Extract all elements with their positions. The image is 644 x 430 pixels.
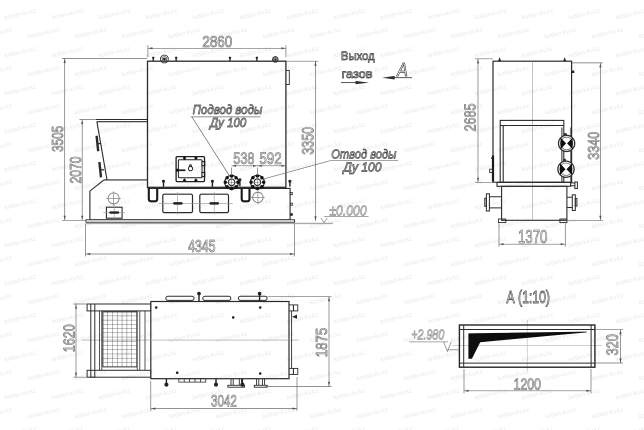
svg-text:3350: 3350 xyxy=(300,127,318,155)
svg-text:2070: 2070 xyxy=(68,156,85,183)
svg-text:2860: 2860 xyxy=(202,34,232,51)
svg-text:1370: 1370 xyxy=(518,227,547,247)
svg-text:Отвод воды: Отвод воды xyxy=(331,147,396,161)
svg-text:1620: 1620 xyxy=(62,324,79,352)
svg-text:Подвод воды: Подвод воды xyxy=(193,103,263,117)
svg-text:1875: 1875 xyxy=(314,328,331,358)
svg-text:592: 592 xyxy=(259,149,281,168)
svg-text:1200: 1200 xyxy=(514,377,542,394)
svg-text:+2.980: +2.980 xyxy=(411,327,444,344)
svg-text:Ду 100: Ду 100 xyxy=(341,160,381,174)
svg-text:3505: 3505 xyxy=(50,126,67,152)
svg-text:3042: 3042 xyxy=(211,392,237,410)
svg-text:320: 320 xyxy=(604,334,622,356)
svg-text:±0.000: ±0.000 xyxy=(329,202,367,219)
svg-text:538: 538 xyxy=(233,149,254,168)
svg-text:2685: 2685 xyxy=(463,104,480,132)
svg-text:газов: газов xyxy=(342,67,373,81)
svg-text:4345: 4345 xyxy=(188,236,216,256)
svg-text:3340: 3340 xyxy=(586,132,603,160)
svg-text:А: А xyxy=(396,60,407,80)
svg-text:Выход: Выход xyxy=(341,49,375,63)
svg-text:А (1:10): А (1:10) xyxy=(506,287,550,307)
svg-text:Ду 100: Ду 100 xyxy=(208,116,246,130)
